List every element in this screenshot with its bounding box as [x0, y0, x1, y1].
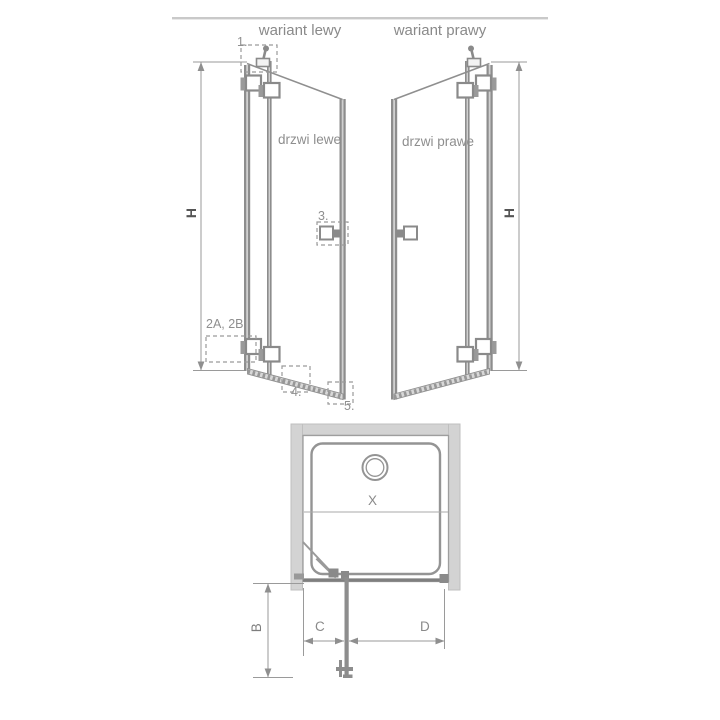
left-hinge-axis-profile [267, 61, 272, 377]
callout-label-2: 2A, 2B [206, 318, 244, 331]
top-divider-line [172, 17, 548, 19]
width-dimension-d [349, 589, 445, 649]
callout-label-5: 5. [344, 400, 354, 413]
technical-drawing-svg [0, 0, 720, 720]
callout-label-1: 1. [237, 36, 247, 49]
right-variant-diagram [391, 46, 527, 400]
callout-label-4: 4. [291, 386, 301, 399]
left-wall-profile [244, 65, 250, 371]
technical-diagram-page: wariant lewy wariant prawy drzwi lewe dr… [0, 0, 720, 720]
plan-open-door [336, 577, 353, 678]
right-door-edge-profile [391, 99, 397, 400]
depth-label-b: B [250, 623, 264, 632]
magnet-profile [440, 574, 449, 583]
callout-label-3: 3. [318, 210, 328, 223]
shower-tray [312, 444, 441, 575]
variant-right-label: wariant prawy [370, 23, 510, 38]
left-top-pivot-knob [257, 46, 270, 67]
right-hinge-axis-profile [465, 61, 470, 377]
right-door-label: drzwi prawe [402, 135, 474, 149]
right-door-handle-knob [396, 227, 417, 240]
offset-label-c: C [315, 620, 325, 634]
left-variant-diagram [193, 45, 353, 404]
left-door-label: drzwi lewe [278, 133, 341, 147]
height-label-right: H [502, 208, 516, 218]
height-label-left: H [184, 208, 198, 218]
right-top-pivot-knob [468, 46, 481, 67]
width-label-d: D [420, 620, 430, 634]
left-door-handle-knob [320, 227, 341, 240]
variant-left-label: wariant lewy [230, 23, 370, 38]
right-bottom-rail [394, 369, 490, 400]
right-wall-profile [487, 65, 493, 371]
plan-view-diagram [253, 424, 460, 678]
tray-width-label: X [368, 494, 377, 508]
